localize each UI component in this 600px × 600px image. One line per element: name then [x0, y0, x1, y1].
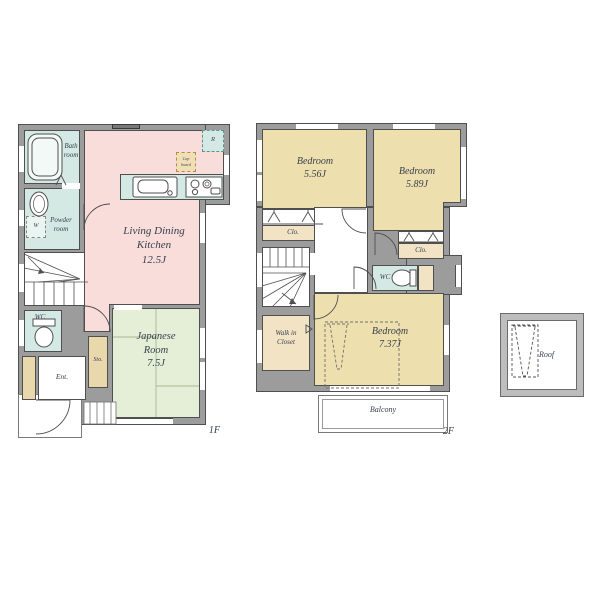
wic-label: Walk inCloset	[263, 329, 309, 347]
floor-1-plan: Bathroom Powderroom W WC Ent. Sto. Japan…	[18, 124, 230, 440]
window-japanese-1	[199, 328, 206, 358]
window-powder	[18, 210, 25, 226]
window-stairs	[18, 264, 25, 292]
bedroom1-label: Bedroom5.56J	[270, 155, 360, 181]
wc-1f-label: WC	[26, 313, 54, 322]
roof-label: Roof	[539, 350, 579, 360]
bedroom2-label: Bedroom5.89J	[373, 165, 461, 191]
window-bath	[18, 146, 25, 172]
window-wc-2f	[455, 265, 462, 287]
floor-1-label: 1F	[168, 424, 220, 437]
window-japanese-2	[199, 362, 206, 390]
closet2-label: Clo.	[398, 246, 444, 255]
japanese-room-opening	[114, 305, 142, 310]
storage-label: Sto.	[87, 357, 109, 365]
balcony-sliding-door	[330, 385, 430, 392]
staircase-1f	[24, 252, 88, 306]
japanese-room-label: JapaneseRoom7.5J	[112, 330, 200, 371]
floor-plan-canvas: Bathroom Powderroom W WC Ent. Sto. Japan…	[0, 0, 600, 600]
floor-2-plan: Bedroom5.56J Bedroom5.89J Clo. Clo. WC W…	[256, 123, 470, 443]
refrigerator-label: R	[202, 136, 224, 144]
hall-2f	[314, 207, 368, 293]
roof-plan: Roof	[500, 313, 584, 397]
entry-porch	[18, 394, 82, 438]
window-bedroom1-top	[296, 123, 338, 130]
window-bedroom2-top	[393, 123, 435, 130]
window-japanese-south	[115, 418, 173, 425]
vent-window	[112, 124, 140, 129]
window-bedroom1-left-1	[256, 140, 263, 172]
bathroom-label: Bathroom	[44, 142, 98, 160]
window-bedroom3-right	[443, 325, 450, 355]
shoe-cabinet	[22, 356, 36, 400]
window-bedroom1-left-2	[256, 175, 263, 201]
balcony-label: Balcony	[318, 405, 448, 415]
wc-vanity	[418, 265, 434, 291]
window-wic	[256, 330, 263, 363]
window-bedroom2-right	[460, 147, 467, 199]
stairs-opening	[310, 253, 316, 275]
kitchen-counter	[120, 174, 224, 200]
ldk-label: Living DiningKitchen12.5J	[98, 224, 210, 267]
washer-label: W	[26, 223, 46, 231]
window-wc-1f	[18, 320, 25, 346]
room-bedroom2-lower	[373, 202, 444, 231]
closet1-label: Clo.	[262, 228, 324, 237]
cupboard-label: Cupboard	[176, 156, 196, 167]
wc-2f-label: WC	[374, 273, 396, 282]
window-stairs-2f	[256, 253, 263, 287]
ldk-hall-strip	[84, 304, 110, 332]
bedroom3-label: Bedroom7.37J	[340, 325, 440, 351]
bath-door-opening	[62, 183, 80, 189]
staircase-2f	[262, 247, 310, 307]
window-kitchen	[223, 155, 230, 175]
entrance-label: Ent.	[42, 372, 82, 382]
floor-2-label: 2F	[402, 425, 454, 438]
closet2-box	[398, 231, 444, 243]
